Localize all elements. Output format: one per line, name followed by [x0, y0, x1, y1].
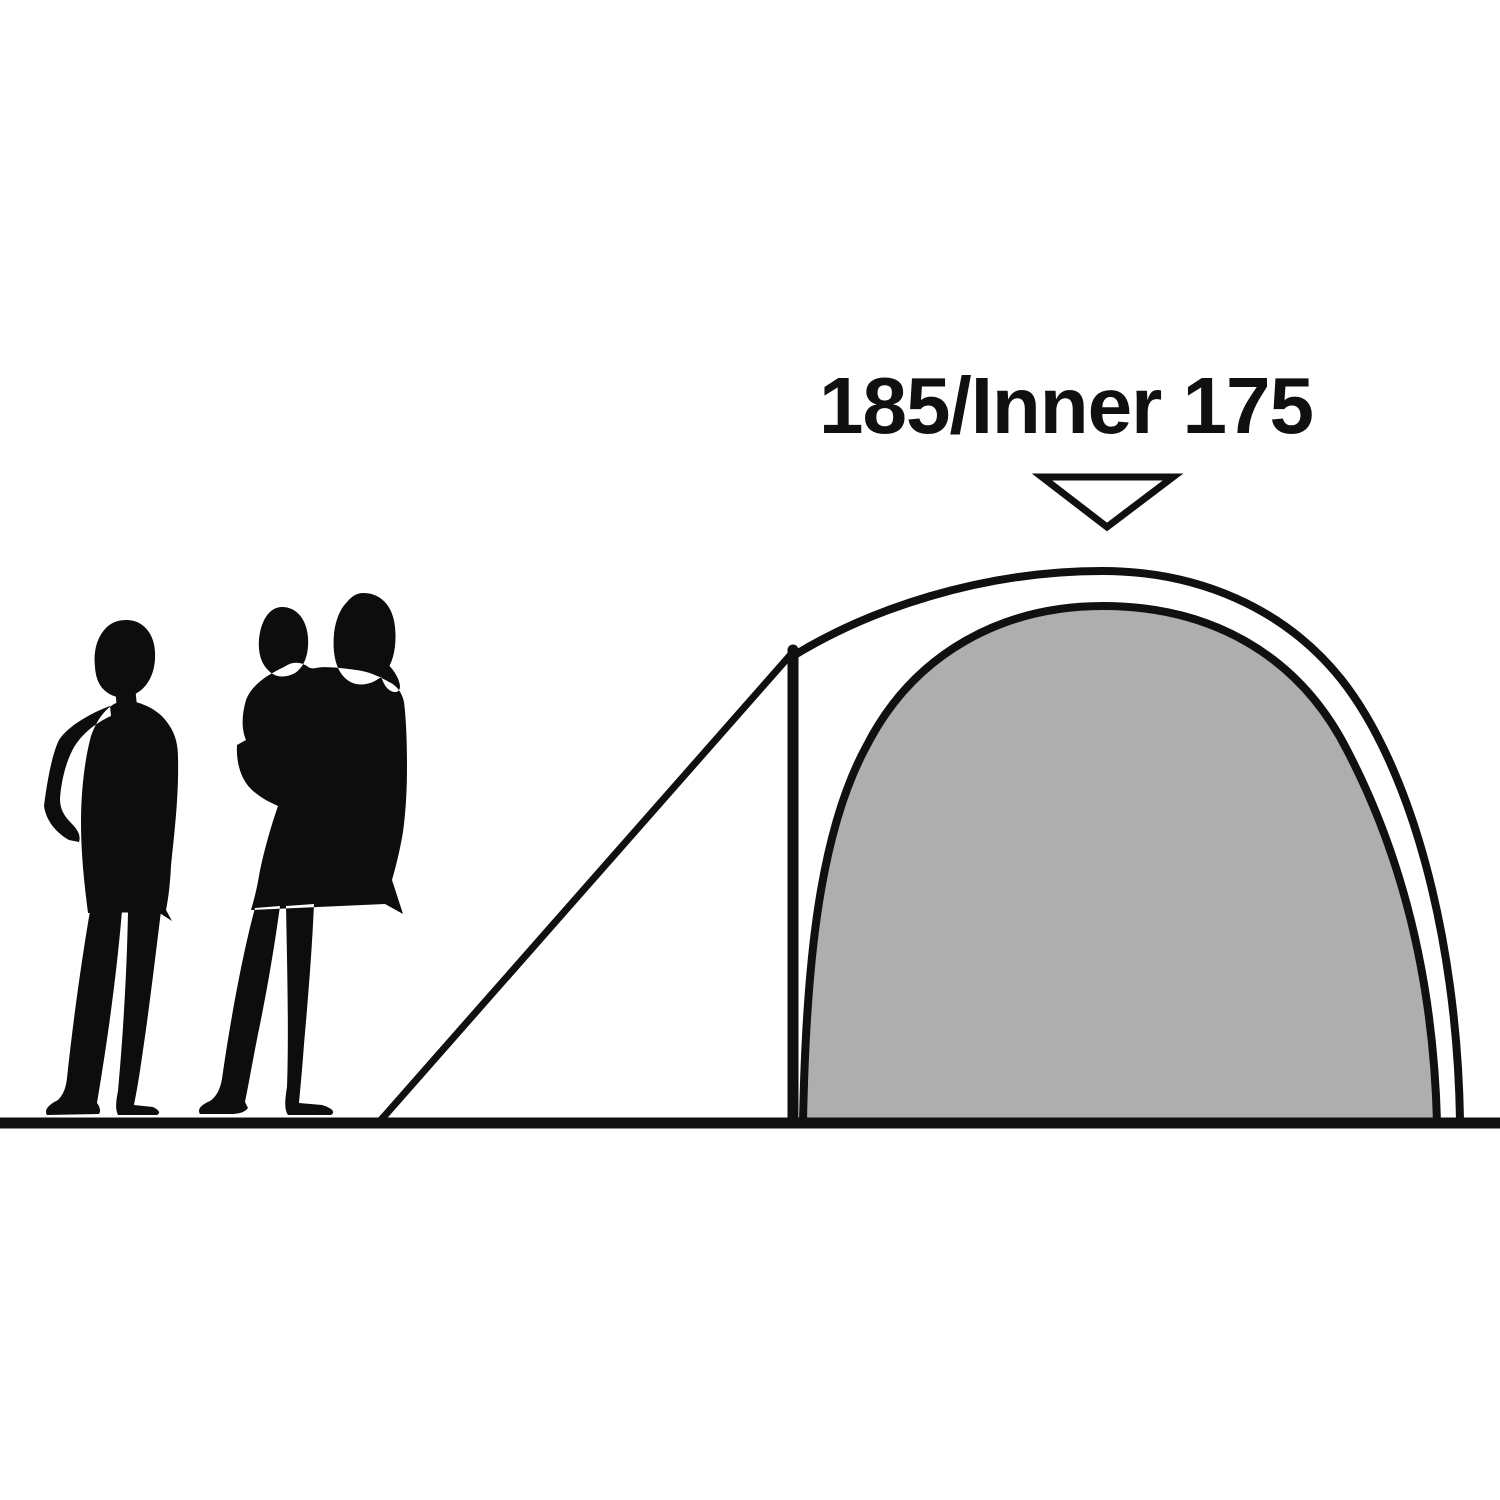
diagram-svg: 185/Inner 175 [0, 0, 1500, 1500]
adult-with-child-silhouette [199, 593, 407, 1115]
guy-line [380, 652, 793, 1121]
triangle-down-icon [1042, 477, 1173, 527]
tent-dimension-diagram: 185/Inner 175 [0, 0, 1500, 1500]
height-dimension-label: 185/Inner 175 [819, 361, 1313, 450]
woman-silhouette [44, 620, 178, 1115]
